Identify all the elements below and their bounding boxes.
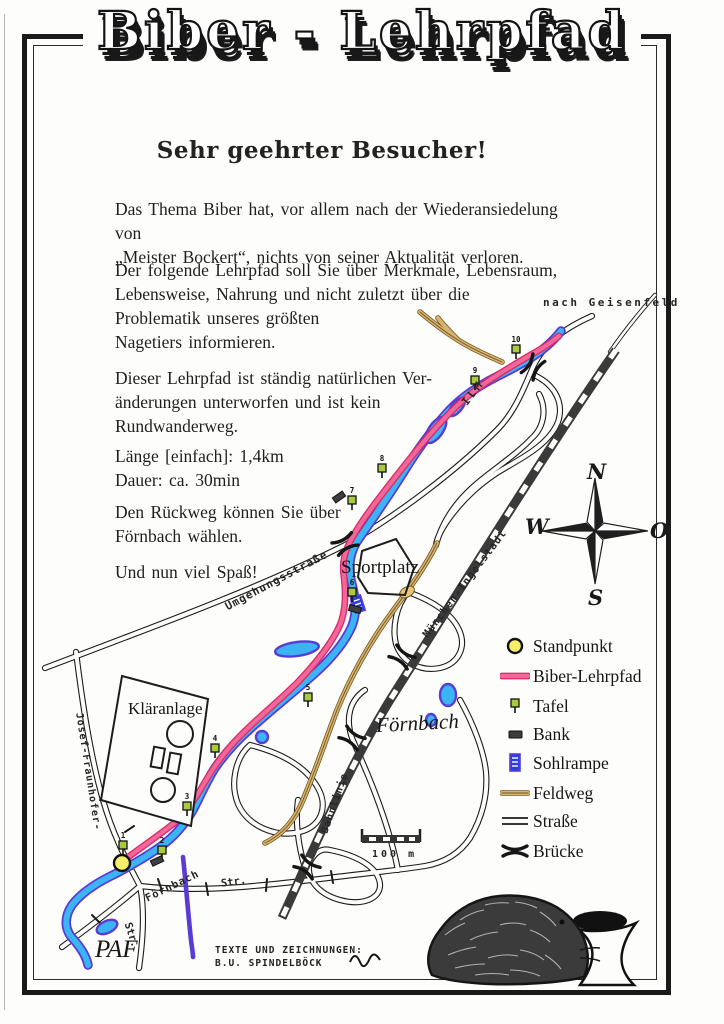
legend-row-bank: Bank: [497, 723, 667, 745]
paragraph-purpose: Der folgende Lehrpfad soll Sie über Merk…: [115, 258, 585, 354]
compass-south: S: [588, 585, 603, 610]
paragraph-changes: Dieser Lehrpfad ist ständig natürlichen …: [115, 366, 475, 438]
feldweg-icon: [497, 782, 533, 804]
strasse-icon: [497, 810, 533, 832]
bruecke-icon: [497, 840, 533, 862]
svg-text:2: 2: [160, 836, 165, 845]
sohlrampe-icon: [497, 752, 533, 774]
compass-rose: [542, 478, 648, 584]
paragraph-length-duration: Länge [einfach]: 1,4km Dauer: ca. 30min: [115, 444, 435, 492]
label-nach-geisenfeld: nach Geisenfeld: [543, 296, 680, 309]
standpunkt-icon: [497, 635, 533, 657]
standpunkt-marker: [114, 855, 130, 871]
label-paf: PAF: [95, 936, 138, 964]
legend-row-feldweg: Feldweg: [497, 782, 667, 804]
pond: [440, 684, 456, 706]
compass-west: W: [525, 514, 549, 539]
leaflet-page: 1 2 3 4 5 6 7 8 9 10: [0, 0, 724, 1024]
tafel-marker: 5: [304, 683, 312, 707]
pond: [256, 731, 268, 743]
legend-row-sohlrampe: Sohlrampe: [497, 752, 667, 774]
tafel-marker: 4: [211, 734, 219, 758]
bank-icon: [497, 723, 533, 745]
svg-text:5: 5: [306, 683, 311, 692]
scale-label: 100 m: [372, 849, 417, 860]
credit-text: TEXTE UND ZEICHNUNGEN: B.U. SPINDELBÖCK: [215, 944, 363, 970]
legend-row-standpunkt: Standpunkt: [497, 635, 667, 657]
legend-row-bruecke: Brücke: [497, 840, 667, 862]
page-title: Biber - Lehrpfad: [83, 1, 641, 62]
greeting-heading: Sehr geehrter Besucher!: [0, 137, 644, 164]
beaver-illustration: [428, 895, 636, 985]
legend-row-strasse: Straße: [497, 810, 667, 832]
legend-row-lehrpfad: Biber-Lehrpfad: [497, 665, 667, 687]
paragraph-return-route: Den Rückweg können Sie über Förnbach wäh…: [115, 500, 435, 548]
trail-icon: [497, 665, 533, 687]
legend-row-tafel: Tafel: [497, 695, 667, 717]
label-foernbach-river: Förnbach: [375, 709, 459, 738]
label-sportplatz: Sportplatz: [341, 557, 419, 579]
svg-text:1: 1: [121, 831, 126, 840]
compass-east: O: [650, 518, 668, 543]
label-klaeranlage: Kläranlage: [128, 699, 203, 719]
pond: [274, 639, 320, 659]
svg-text:4: 4: [213, 734, 218, 743]
tafel-icon: [497, 695, 533, 717]
svg-text:3: 3: [185, 792, 190, 801]
compass-north: N: [587, 459, 606, 484]
